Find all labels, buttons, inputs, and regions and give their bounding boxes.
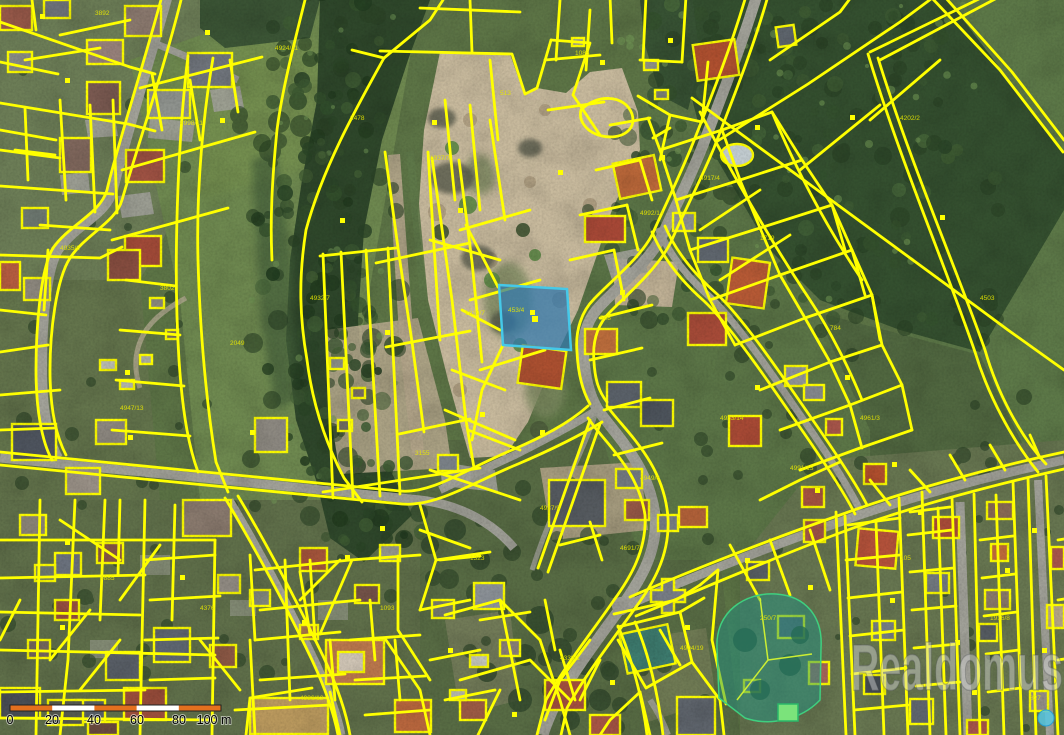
svg-text:1719: 1719	[760, 235, 775, 242]
svg-text:4885: 4885	[100, 575, 115, 582]
svg-text:4991/13: 4991/13	[790, 465, 814, 472]
svg-text:1085: 1085	[575, 50, 590, 57]
svg-text:0: 0	[7, 713, 14, 727]
svg-text:4994/19: 4994/19	[680, 645, 704, 652]
svg-text:1916/8: 1916/8	[990, 615, 1010, 622]
svg-text:2478: 2478	[350, 115, 365, 122]
svg-text:453/4: 453/4	[508, 307, 525, 314]
svg-text:4992/14: 4992/14	[640, 210, 664, 217]
svg-text:4935/6: 4935/6	[60, 245, 80, 252]
svg-text:Realdomus: Realdomus	[851, 630, 1063, 704]
svg-text:40: 40	[87, 713, 101, 727]
svg-text:250/7: 250/7	[760, 615, 777, 622]
svg-text:4339/1: 4339/1	[560, 655, 580, 662]
svg-text:1819/7: 1819/7	[465, 310, 485, 317]
svg-text:3892: 3892	[95, 10, 110, 17]
svg-text:4691/7: 4691/7	[620, 545, 640, 552]
svg-text:4932/7: 4932/7	[310, 295, 330, 302]
svg-text:105: 105	[900, 555, 911, 562]
svg-text:3802: 3802	[160, 285, 175, 292]
svg-text:4936/12: 4936/12	[300, 695, 324, 702]
svg-text:548: 548	[600, 315, 611, 322]
svg-text:4917/4: 4917/4	[700, 175, 720, 182]
svg-text:4947/13: 4947/13	[120, 405, 144, 412]
svg-text:80: 80	[172, 713, 186, 727]
svg-text:4998/11: 4998/11	[180, 120, 203, 127]
svg-text:4949/6: 4949/6	[640, 475, 660, 482]
svg-text:4503: 4503	[980, 295, 995, 302]
svg-text:513: 513	[500, 90, 511, 97]
svg-text:4924/11: 4924/11	[275, 45, 298, 52]
svg-text:1937/7: 1937/7	[430, 155, 450, 162]
svg-text:100 m: 100 m	[197, 713, 232, 727]
svg-text:60: 60	[130, 713, 144, 727]
svg-text:4961/3: 4961/3	[860, 415, 880, 422]
svg-text:4376: 4376	[200, 605, 215, 612]
svg-text:4937/9: 4937/9	[540, 505, 560, 512]
svg-text:4202/2: 4202/2	[900, 115, 920, 122]
svg-text:20: 20	[45, 713, 59, 727]
svg-text:1323: 1323	[470, 555, 485, 562]
svg-text:784: 784	[830, 325, 841, 332]
svg-text:3155: 3155	[415, 450, 430, 457]
svg-text:4933/14: 4933/14	[720, 415, 744, 422]
svg-text:2049: 2049	[230, 340, 245, 347]
svg-text:1093: 1093	[380, 605, 395, 612]
